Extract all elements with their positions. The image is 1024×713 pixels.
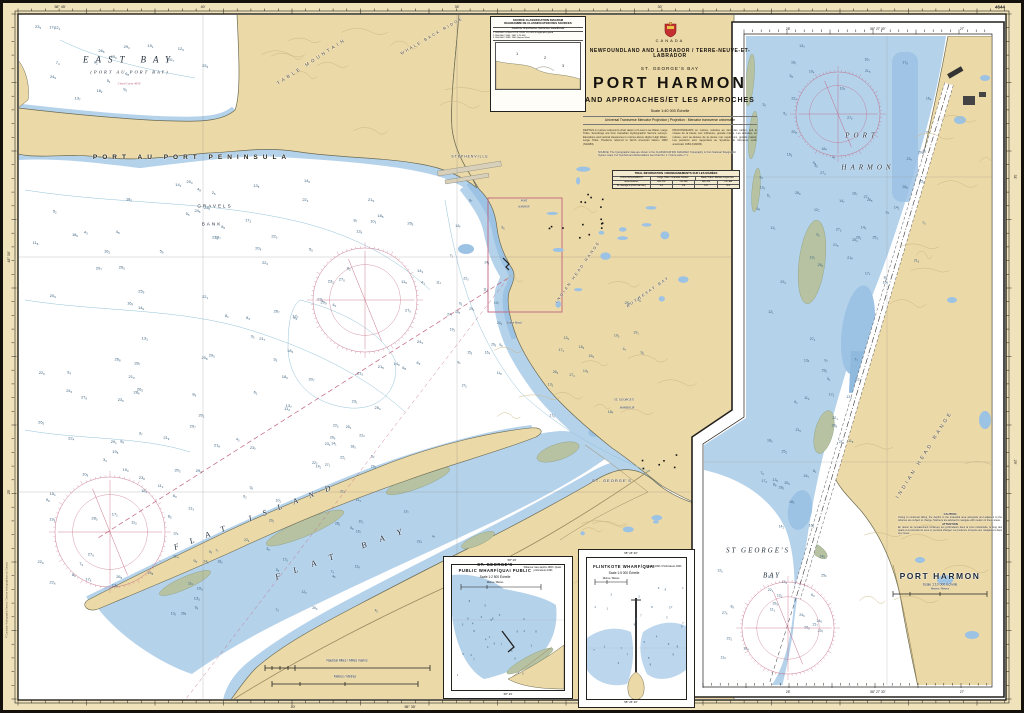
inset-b-coord-top: 58° 26' 30" — [624, 551, 638, 555]
graticule-right-1: 31' — [1013, 175, 1017, 180]
label-port-au-port-peninsula: PORT AU PORT PENINSULA — [93, 155, 291, 162]
caution-body-fr: En raison de l'envasement continuel, les… — [898, 526, 1002, 535]
source-box-title-fr: DIAGRAMME DE CLASSIFICATION DES SOURCES — [493, 22, 583, 25]
panel-grat-bottom-1: 28' — [786, 690, 790, 694]
source-box-row: 3 CHS-SHC 1899, 1903 Various/Varié — [493, 37, 583, 41]
inset-a-coord-top: 58° 29' — [508, 558, 517, 562]
svg-text:8: 8 — [665, 587, 667, 591]
panel-grat-bottom-2: 58° 27' 30" — [870, 690, 885, 694]
inset-st-georges-wharf: 3854143553685166844845979672 ST. GEORGE'… — [443, 556, 573, 699]
panel-label-harmon: HARMON — [841, 165, 894, 172]
tidal-large-head: Large Tides / Grandes marées — [651, 177, 695, 180]
label-stephenville: STEPHENVILLE — [451, 155, 488, 158]
svg-text:7: 7 — [682, 621, 684, 625]
panel-label-st-georges: ST GEORGE'S — [726, 548, 790, 555]
source-classification-box: SOURCE CLASSIFICATION DIAGRAM DIAGRAMME … — [490, 16, 586, 112]
label-east-bay: EAST BAY — [83, 56, 177, 65]
label-gravels: GRAVELS — [197, 205, 232, 210]
svg-text:3: 3 — [562, 63, 565, 68]
svg-text:1: 1 — [682, 586, 684, 590]
tidal-mean-head: Mean Tides / Marées moyennes — [696, 177, 739, 180]
svg-text:7: 7 — [671, 605, 673, 609]
source-diagram-map: 1 2 3 — [495, 42, 581, 90]
inset-a-scale: Scale 1:2 500 Échelle — [480, 575, 511, 579]
label-east-bay-ref: Chart/Carte 4656 — [118, 82, 141, 85]
panel-grat-top-3: 27' — [960, 27, 964, 31]
inset-a-coord-bottom: 58° 29' — [504, 692, 513, 696]
inset-a-metres: Metres / Mètres — [487, 581, 504, 584]
inset-a-map: 3854143553685166844845979672 — [452, 565, 564, 690]
svg-text:9: 9 — [658, 586, 660, 590]
label-east-bay-sub: (PORT AU PORT BAY) — [90, 71, 169, 76]
chart-number: 4644 — [995, 5, 1005, 10]
graticule-top-3: 35' — [455, 5, 460, 9]
scalebar-miles-label: Nautical Miles / Milles marins — [326, 659, 367, 662]
area-line: ST. GEORGE'S BAY — [583, 66, 757, 71]
svg-text:1: 1 — [516, 51, 519, 56]
graticule-left-2: 25' — [7, 490, 11, 495]
label-harbour-1: ST. GEORGE'S — [614, 398, 634, 401]
panel-label-port: PORT — [845, 133, 879, 140]
inset-a-title-1: ST. GEORGE'S — [477, 562, 512, 567]
title-block: CANADA NEWFOUNDLAND AND LABRADOR / TERRE… — [583, 22, 757, 146]
edge-imprint: © Canadian Hydrographic Service / Servic… — [6, 562, 9, 638]
chart-scale: Scale 1:40 000 Échelle — [583, 109, 757, 113]
svg-text:3: 3 — [610, 593, 612, 597]
chart-subtitle: AND APPROACHES/ET LES APPROCHES — [583, 97, 757, 105]
label-st-georges-town: ST. GEORGE'S — [592, 479, 632, 483]
region-line: NEWFOUNDLAND AND LABRADOR / TERRE-NEUVE-… — [583, 49, 757, 61]
label-harmon-small: HARMON — [518, 207, 529, 210]
panel-grat-top-2: 58° 27' 30" — [870, 27, 885, 31]
label-bank: BANK — [202, 223, 223, 228]
source-note: SOURCE: The hydrographic data are shown … — [598, 151, 736, 157]
panel-label-bay: BAY — [763, 573, 781, 580]
tidal-value: 1.0 — [695, 185, 717, 188]
tidal-information-table: TIDAL INFORMATION / RENSEIGNEMENTS SUR L… — [612, 170, 740, 189]
panel-grat-bottom-3: 27' — [960, 690, 964, 694]
notes-french: PROFONDEURS en mètres, réduites au zéro … — [673, 129, 758, 146]
inset-b-coord-bottom: 58° 26' 30" — [624, 700, 638, 704]
label-harbour-2: HARBOUR — [620, 406, 635, 409]
graticule-left-1: 48° 30' — [7, 251, 11, 262]
panel-scale: Scale 1:10 000 Échelle — [923, 583, 958, 586]
projection-line: Universal Transverse Mercator Projection… — [583, 116, 757, 125]
svg-text:3: 3 — [666, 616, 668, 620]
label-port-small: PORT — [521, 201, 528, 204]
inset-a-note: Wharves: face depths 1993 / Quais : prof… — [521, 567, 565, 573]
svg-text:8: 8 — [651, 605, 653, 609]
country-label: CANADA — [583, 39, 757, 44]
notes-english: DEPTHS in metres reduced to chart datum … — [583, 129, 668, 146]
scalebar-metres-label: Metres / Mètres — [334, 675, 356, 678]
chart-title: PORT HARMON — [583, 75, 757, 93]
panel-scalebar-label: Metres / Mètres — [931, 589, 949, 592]
svg-text:7: 7 — [640, 613, 642, 617]
panel-title: PORT HARMON — [900, 572, 981, 581]
svg-text:1: 1 — [457, 673, 459, 677]
graticule-top-1: 58° 45' — [54, 5, 65, 9]
nautical-chart-port-harmon: 1821412541802781726825213217412358211826… — [0, 0, 1024, 713]
svg-text:3: 3 — [635, 617, 637, 621]
graticule-bottom-1: 40' — [291, 705, 296, 709]
canada-coat-of-arms — [663, 22, 678, 38]
svg-text:2: 2 — [594, 605, 596, 609]
inset-b-metres: Metres / Mètres — [603, 577, 620, 580]
tidal-location-head: LOCATION ENDROIT — [613, 177, 651, 180]
tidal-value: 1.2 — [651, 185, 673, 188]
inset-flintkote-wharf: 3389819363877773245981757218 FLINTKOTE W… — [578, 549, 695, 708]
tidal-value: 0.4 — [718, 185, 739, 188]
caution-body-en: Owing to continual silting, the depths i… — [898, 516, 1002, 522]
graticule-top-2: 40' — [201, 5, 206, 9]
graticule-top-4: 30' — [658, 5, 663, 9]
graticule-bottom-2: 58° 35' — [404, 705, 415, 709]
tidal-station: St. George's (Port Harmon) — [613, 185, 651, 188]
label-indian-head-point: Indian Head — [506, 322, 521, 325]
graticule-right-2: 29' — [1013, 460, 1017, 465]
panel-caution-note: CAUTION Owing to continual silting, the … — [898, 513, 1002, 535]
svg-text:2: 2 — [638, 594, 640, 598]
inset-b-note: Depths 1993 / Profondeurs 1993 — [644, 566, 684, 569]
chart-notes: DEPTHS in metres reduced to chart datum … — [583, 129, 757, 146]
svg-text:2: 2 — [544, 55, 547, 60]
svg-text:1: 1 — [606, 606, 608, 610]
tidal-value: 0.2 — [673, 185, 695, 188]
inset-b-scale: Scale 1:5 000 Échelle — [609, 571, 640, 575]
panel-grat-top-1: 28' — [786, 27, 790, 31]
